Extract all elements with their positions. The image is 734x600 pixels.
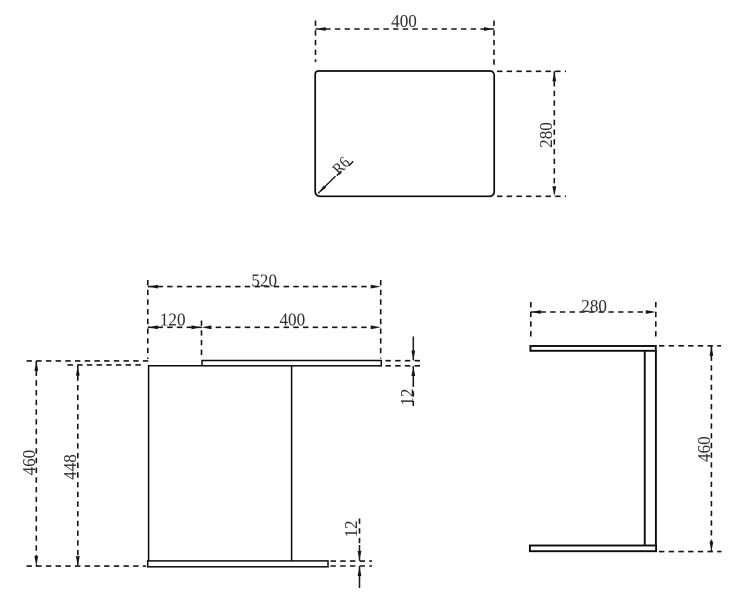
svg-text:400: 400 (279, 309, 305, 330)
svg-text:460: 460 (694, 436, 715, 462)
svg-text:460: 460 (19, 450, 40, 476)
svg-text:520: 520 (251, 270, 277, 291)
svg-text:12: 12 (397, 389, 418, 406)
svg-text:400: 400 (391, 11, 417, 32)
svg-text:448: 448 (60, 454, 81, 480)
svg-text:280: 280 (581, 296, 607, 317)
svg-text:120: 120 (160, 309, 186, 330)
svg-text:R6: R6 (329, 154, 354, 179)
svg-text:12: 12 (341, 520, 362, 537)
svg-text:280: 280 (535, 122, 556, 148)
